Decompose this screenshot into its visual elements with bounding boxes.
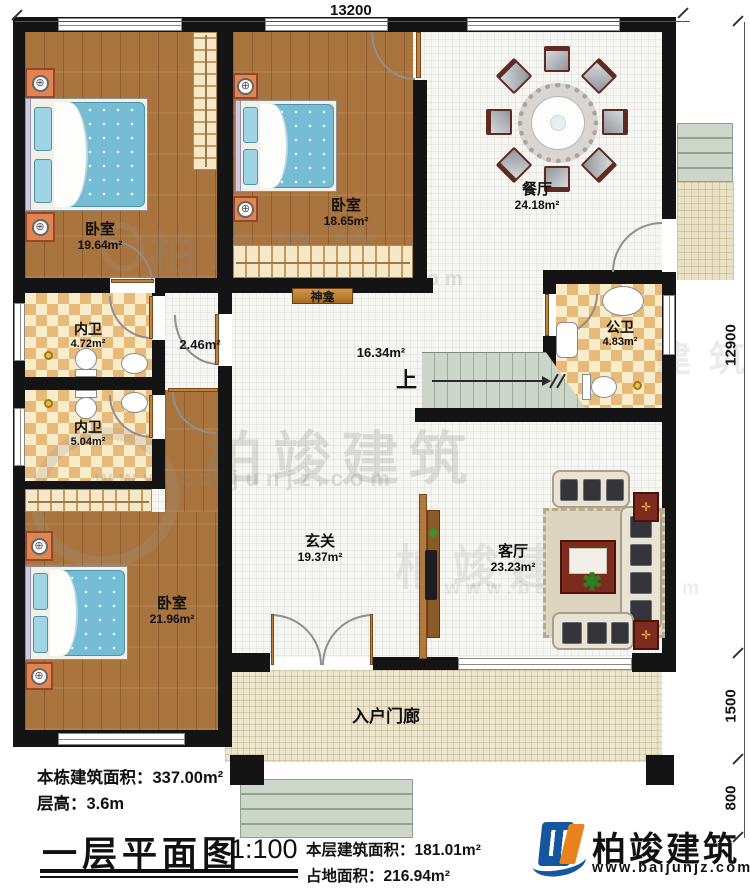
wall-bedroom3-top bbox=[13, 481, 165, 489]
window-dining-top bbox=[467, 18, 620, 31]
living-label: 客厅 23.23m² bbox=[491, 544, 536, 574]
dimension-line-right bbox=[744, 22, 745, 838]
bath1-label: 内卫 4.72m² bbox=[71, 322, 106, 350]
lamp-icon: ⊕ bbox=[237, 201, 254, 218]
pillow bbox=[33, 573, 48, 610]
side-landing bbox=[677, 182, 734, 280]
dining-table-center bbox=[550, 115, 566, 131]
toilet-bath2 bbox=[75, 397, 97, 419]
porch-column-bottom-right bbox=[646, 755, 674, 785]
sink-bath2 bbox=[121, 392, 148, 413]
scale-text: 1:100 bbox=[230, 834, 298, 865]
cushion bbox=[562, 622, 582, 644]
side-table: ✛ bbox=[633, 492, 659, 522]
floor-drain-icon bbox=[44, 351, 53, 360]
porch-label: 入户门廊 bbox=[352, 707, 420, 726]
lamp-icon: ⊕ bbox=[31, 538, 48, 555]
tv-screen bbox=[425, 550, 437, 600]
dimension-tick bbox=[677, 7, 688, 18]
pillow bbox=[243, 107, 258, 143]
window-bath2-left bbox=[14, 408, 25, 466]
toilet-tank-bath1 bbox=[75, 369, 97, 377]
window-living-bottom bbox=[458, 658, 632, 670]
corridor-area-label: 2.46m² bbox=[179, 338, 220, 353]
door-leaf-public-bath bbox=[545, 294, 549, 336]
toilet-public-bath bbox=[591, 376, 617, 398]
bedroom1-label: 卧室 19.64m² bbox=[78, 222, 123, 252]
logo-url: www.baijunjz.com bbox=[592, 860, 750, 876]
stair-up-label: 上 bbox=[396, 364, 417, 394]
dimension-tick bbox=[732, 647, 743, 658]
floor-drain-icon bbox=[44, 399, 53, 408]
window-bedroom3-bottom bbox=[58, 733, 185, 745]
wardrobe-bedroom2 bbox=[233, 245, 413, 278]
dimension-right-porch: 1500 bbox=[723, 689, 740, 722]
dining-chair bbox=[486, 109, 512, 135]
stair-direction-line bbox=[432, 380, 542, 382]
wall-public-bath-top bbox=[543, 270, 662, 284]
porch-column-bottom-left bbox=[230, 755, 264, 785]
cushion bbox=[560, 479, 578, 501]
window-bedroom1-top bbox=[58, 18, 182, 31]
porch-floor bbox=[225, 670, 662, 762]
wall-stair-foyer bbox=[415, 408, 662, 422]
lamp-icon: ⊕ bbox=[32, 219, 49, 236]
cushion bbox=[587, 622, 607, 644]
dining-chair bbox=[544, 46, 570, 72]
floor-height-text: 层高：3.6m bbox=[37, 790, 124, 814]
door-leaf-bedroom1 bbox=[111, 279, 154, 283]
doorway-dining-side bbox=[662, 219, 676, 272]
bed-bedroom2 bbox=[235, 100, 337, 192]
window-public-bath-right bbox=[663, 295, 675, 355]
dining-table bbox=[518, 83, 598, 163]
pillow bbox=[243, 149, 258, 185]
wall-bedroom3-right bbox=[218, 366, 232, 747]
floor-area-text: 本层建筑面积：181.01m² bbox=[306, 838, 481, 860]
sink-public-bath bbox=[602, 286, 644, 316]
nightstand: ⊕ bbox=[25, 662, 53, 690]
floor-drain-icon bbox=[633, 381, 642, 390]
door-leaf-bedroom2 bbox=[416, 32, 421, 78]
title-underline bbox=[40, 869, 298, 873]
doorway-bath2 bbox=[152, 395, 165, 439]
porch-column-top-left bbox=[225, 653, 270, 672]
cushion bbox=[611, 622, 629, 644]
lamp-icon: ⊕ bbox=[237, 78, 254, 95]
wall-bedroom2-dining bbox=[413, 80, 427, 278]
title-underline-thin bbox=[40, 876, 298, 878]
sofa-top bbox=[552, 470, 630, 508]
footprint-area-text: 占地面积：216.94m² bbox=[306, 864, 450, 886]
headboard bbox=[26, 567, 31, 659]
cushion bbox=[583, 479, 601, 501]
plant-icon: ✱ bbox=[582, 568, 602, 597]
dimension-tick bbox=[732, 15, 743, 26]
nightstand: ⊕ bbox=[25, 212, 55, 242]
door-leaf-entry-left bbox=[271, 614, 274, 665]
sofa-bottom bbox=[552, 612, 634, 650]
headboard bbox=[26, 99, 31, 210]
front-steps bbox=[240, 779, 413, 838]
wall-bath-divider bbox=[13, 377, 165, 390]
bedroom3-label: 卧室 21.96m² bbox=[150, 596, 195, 626]
shrine-cabinet: 神龛 bbox=[292, 288, 353, 304]
public-bath-label: 公卫 4.83m² bbox=[603, 320, 638, 348]
bath2-label: 内卫 5.04m² bbox=[71, 420, 106, 448]
wall-bedroom3-right-stub bbox=[218, 290, 232, 314]
shrine-label: 神龛 bbox=[310, 288, 334, 305]
lamp-icon: ⊕ bbox=[31, 668, 48, 685]
lamp-icon: ⊕ bbox=[32, 75, 49, 92]
bedroom2-label: 卧室 18.65m² bbox=[324, 198, 369, 228]
wall-bedroom1-bedroom2 bbox=[217, 32, 233, 278]
pillow bbox=[34, 107, 52, 151]
foyer-label: 玄关 19.37m² bbox=[298, 534, 343, 564]
wall-foyer-porch bbox=[373, 657, 458, 670]
bed-bedroom3 bbox=[25, 566, 128, 660]
side-steps bbox=[677, 123, 733, 182]
pillow bbox=[33, 616, 48, 653]
cushion bbox=[606, 479, 624, 501]
nightstand: ⊕ bbox=[233, 196, 258, 222]
window-bath1-left bbox=[14, 303, 25, 361]
pillow bbox=[34, 159, 52, 203]
dimension-line-top bbox=[15, 21, 690, 22]
door-leaf-entry-right bbox=[370, 614, 373, 665]
doorway-bath1 bbox=[152, 296, 165, 340]
dimension-top: 13200 bbox=[330, 2, 372, 19]
toilet-bath1 bbox=[75, 348, 97, 370]
sink-bath1 bbox=[121, 353, 148, 374]
door-leaf-bath1 bbox=[149, 296, 153, 339]
dimension-right-main: 12900 bbox=[723, 324, 740, 366]
side-table: ✛ bbox=[633, 620, 659, 650]
bed-bedroom1 bbox=[25, 98, 148, 211]
nightstand: ⊕ bbox=[25, 68, 55, 98]
porch-column-top-right bbox=[632, 653, 672, 672]
dimension-tick bbox=[732, 753, 743, 764]
toilet-tank-public-bath bbox=[582, 374, 591, 400]
dining-label: 餐厅 24.18m² bbox=[515, 182, 560, 212]
water-heater-public-bath bbox=[556, 322, 578, 358]
headboard bbox=[236, 101, 241, 191]
dimension-right-steps: 800 bbox=[723, 785, 740, 810]
door-leaf-bath2 bbox=[149, 395, 153, 438]
nightstand: ⊕ bbox=[25, 531, 53, 561]
hall-area-label: 16.34m² bbox=[357, 346, 405, 361]
cushion bbox=[630, 544, 652, 566]
floor-plan-canvas: 柏竣建筑 www.baijunjz.com 柏竣建筑 www.baijunjz.… bbox=[0, 0, 750, 892]
closet-bedroom1 bbox=[193, 32, 217, 170]
wardrobe-bedroom3 bbox=[25, 489, 152, 512]
dining-chair bbox=[602, 109, 628, 135]
cushion bbox=[630, 572, 652, 594]
coffee-table: ✱ bbox=[560, 540, 616, 594]
nightstand: ⊕ bbox=[233, 73, 258, 99]
building-area-text: 本栋建筑面积：337.00m² bbox=[37, 764, 223, 788]
window-bedroom2-top bbox=[265, 18, 388, 31]
plant-icon bbox=[429, 528, 438, 537]
